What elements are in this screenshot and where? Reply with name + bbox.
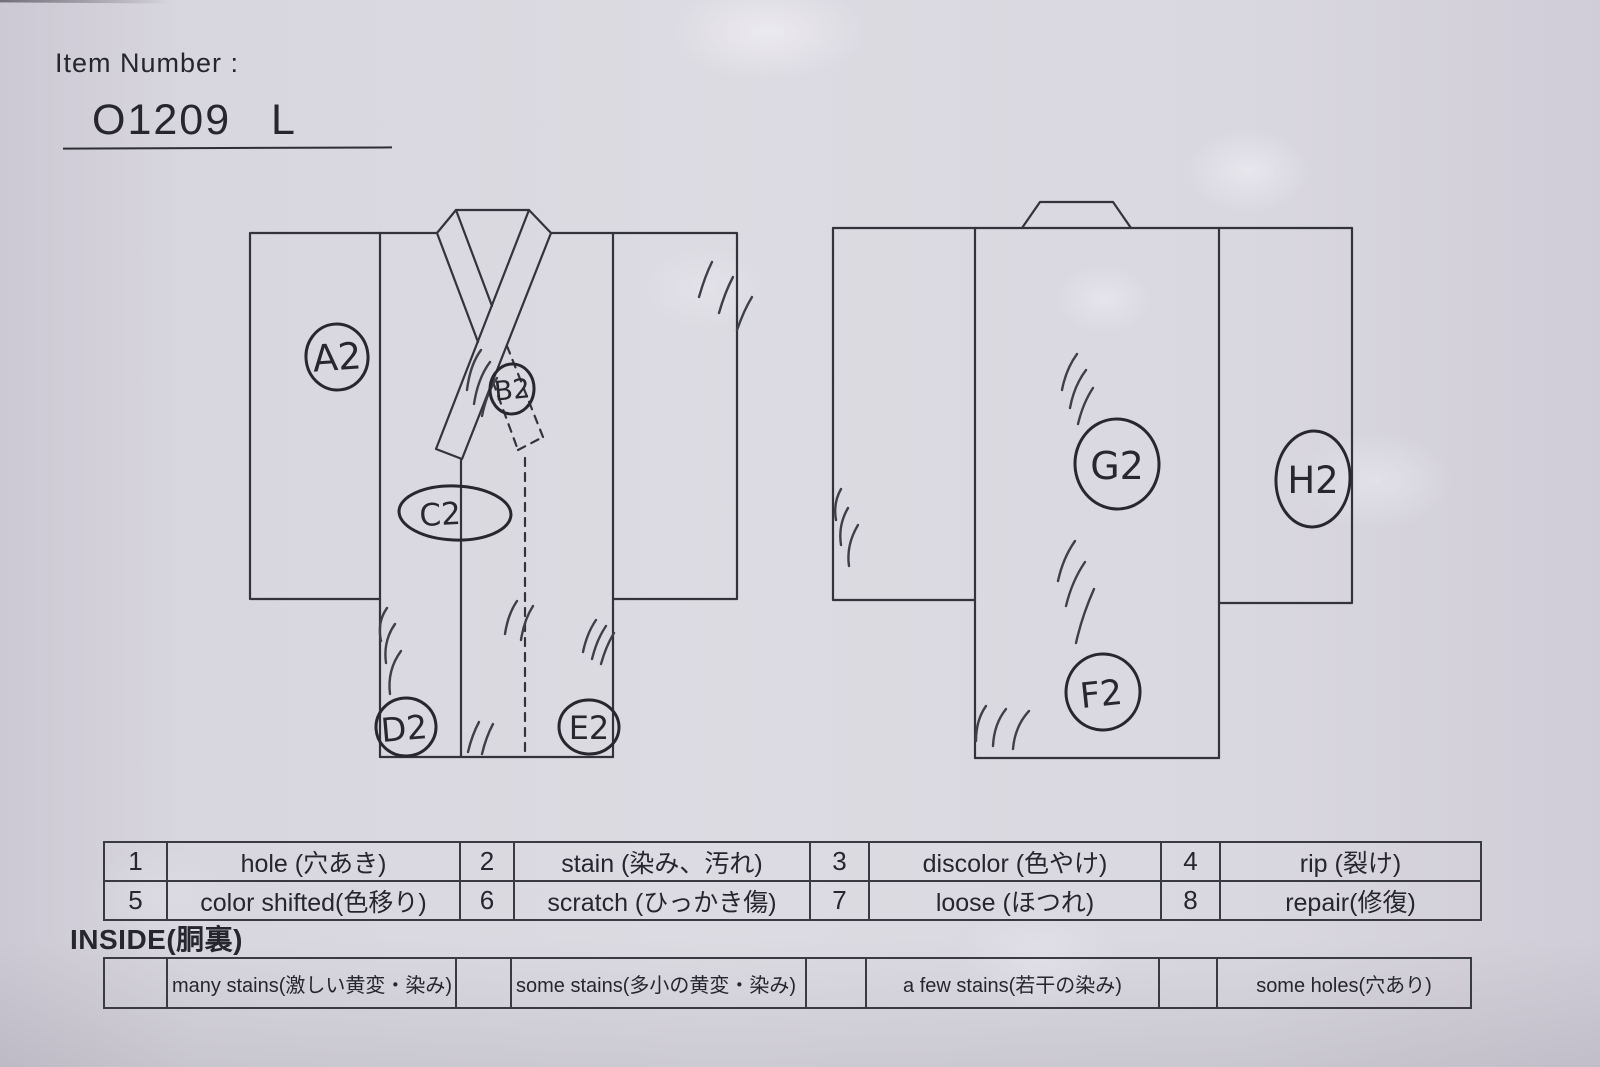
defect-legend-table: 1 hole (穴あき) 2 stain (染み、汚れ) 3 discolor … <box>103 841 1482 921</box>
inside-label-a-few-stains: a few stains(若干の染み) <box>866 958 1159 1008</box>
legend-num-8: 8 <box>1161 881 1220 920</box>
inside-label-many-stains: many stains(激しい黄変・染み) <box>167 958 456 1008</box>
marker-h2: H2 <box>1274 429 1353 529</box>
legend-label-repair: repair(修復) <box>1220 881 1481 920</box>
inside-checkbox-many-stains <box>104 958 167 1008</box>
condition-sheet-photo: Item Number : O1209 L <box>0 0 1600 1067</box>
legend-label-color-shifted: color shifted(色移り) <box>167 881 460 920</box>
legend-num-1: 1 <box>104 842 167 881</box>
inside-label-some-holes: some holes(穴あり) <box>1217 958 1471 1008</box>
svg-text:A2: A2 <box>311 334 363 380</box>
legend-num-2: 2 <box>460 842 514 881</box>
inside-condition-table: many stains(激しい黄変・染み) some stains(多小の黄変・… <box>103 957 1472 1009</box>
inside-checkbox-some-holes <box>1159 958 1217 1008</box>
inside-checkbox-a-few-stains <box>806 958 866 1008</box>
legend-num-5: 5 <box>104 881 167 920</box>
marker-f2: F2 <box>1063 652 1142 733</box>
svg-text:G2: G2 <box>1090 444 1144 488</box>
marker-c2: C2 <box>398 484 512 542</box>
marker-a2: A2 <box>303 321 372 393</box>
svg-text:F2: F2 <box>1078 673 1124 717</box>
legend-label-stain: stain (染み、汚れ) <box>514 842 810 881</box>
legend-num-7: 7 <box>810 881 869 920</box>
legend-num-6: 6 <box>460 881 514 920</box>
legend-num-3: 3 <box>810 842 869 881</box>
svg-text:D2: D2 <box>379 707 429 750</box>
marker-e2: E2 <box>558 698 621 755</box>
kimono-back-damage-hatches <box>835 354 1094 749</box>
svg-text:H2: H2 <box>1287 459 1338 502</box>
legend-label-scratch: scratch (ひっかき傷) <box>514 881 810 920</box>
legend-row-2: 5 color shifted(色移り) 6 scratch (ひっかき傷) 7… <box>104 881 1481 920</box>
legend-row-1: 1 hole (穴あき) 2 stain (染み、汚れ) 3 discolor … <box>104 842 1481 881</box>
inside-heading: INSIDE(胴裏) <box>70 918 243 958</box>
legend-num-4: 4 <box>1161 842 1220 881</box>
legend-label-loose: loose (ほつれ) <box>869 881 1161 920</box>
svg-text:C2: C2 <box>419 496 462 534</box>
legend-label-hole: hole (穴あき) <box>167 842 460 881</box>
marker-b2: B2 <box>488 363 535 416</box>
marker-d2: D2 <box>374 695 439 758</box>
inside-checkbox-some-stains <box>456 958 511 1008</box>
svg-text:E2: E2 <box>569 709 610 747</box>
legend-label-discolor: discolor (色やけ) <box>869 842 1161 881</box>
inside-row-1: many stains(激しい黄変・染み) some stains(多小の黄変・… <box>104 958 1471 1008</box>
svg-text:B2: B2 <box>493 373 532 408</box>
kimono-front-outline <box>250 210 737 757</box>
inside-label-some-stains: some stains(多小の黄変・染み) <box>511 958 806 1008</box>
legend-label-rip: rip (裂け) <box>1220 842 1481 881</box>
marker-g2: G2 <box>1073 417 1162 511</box>
